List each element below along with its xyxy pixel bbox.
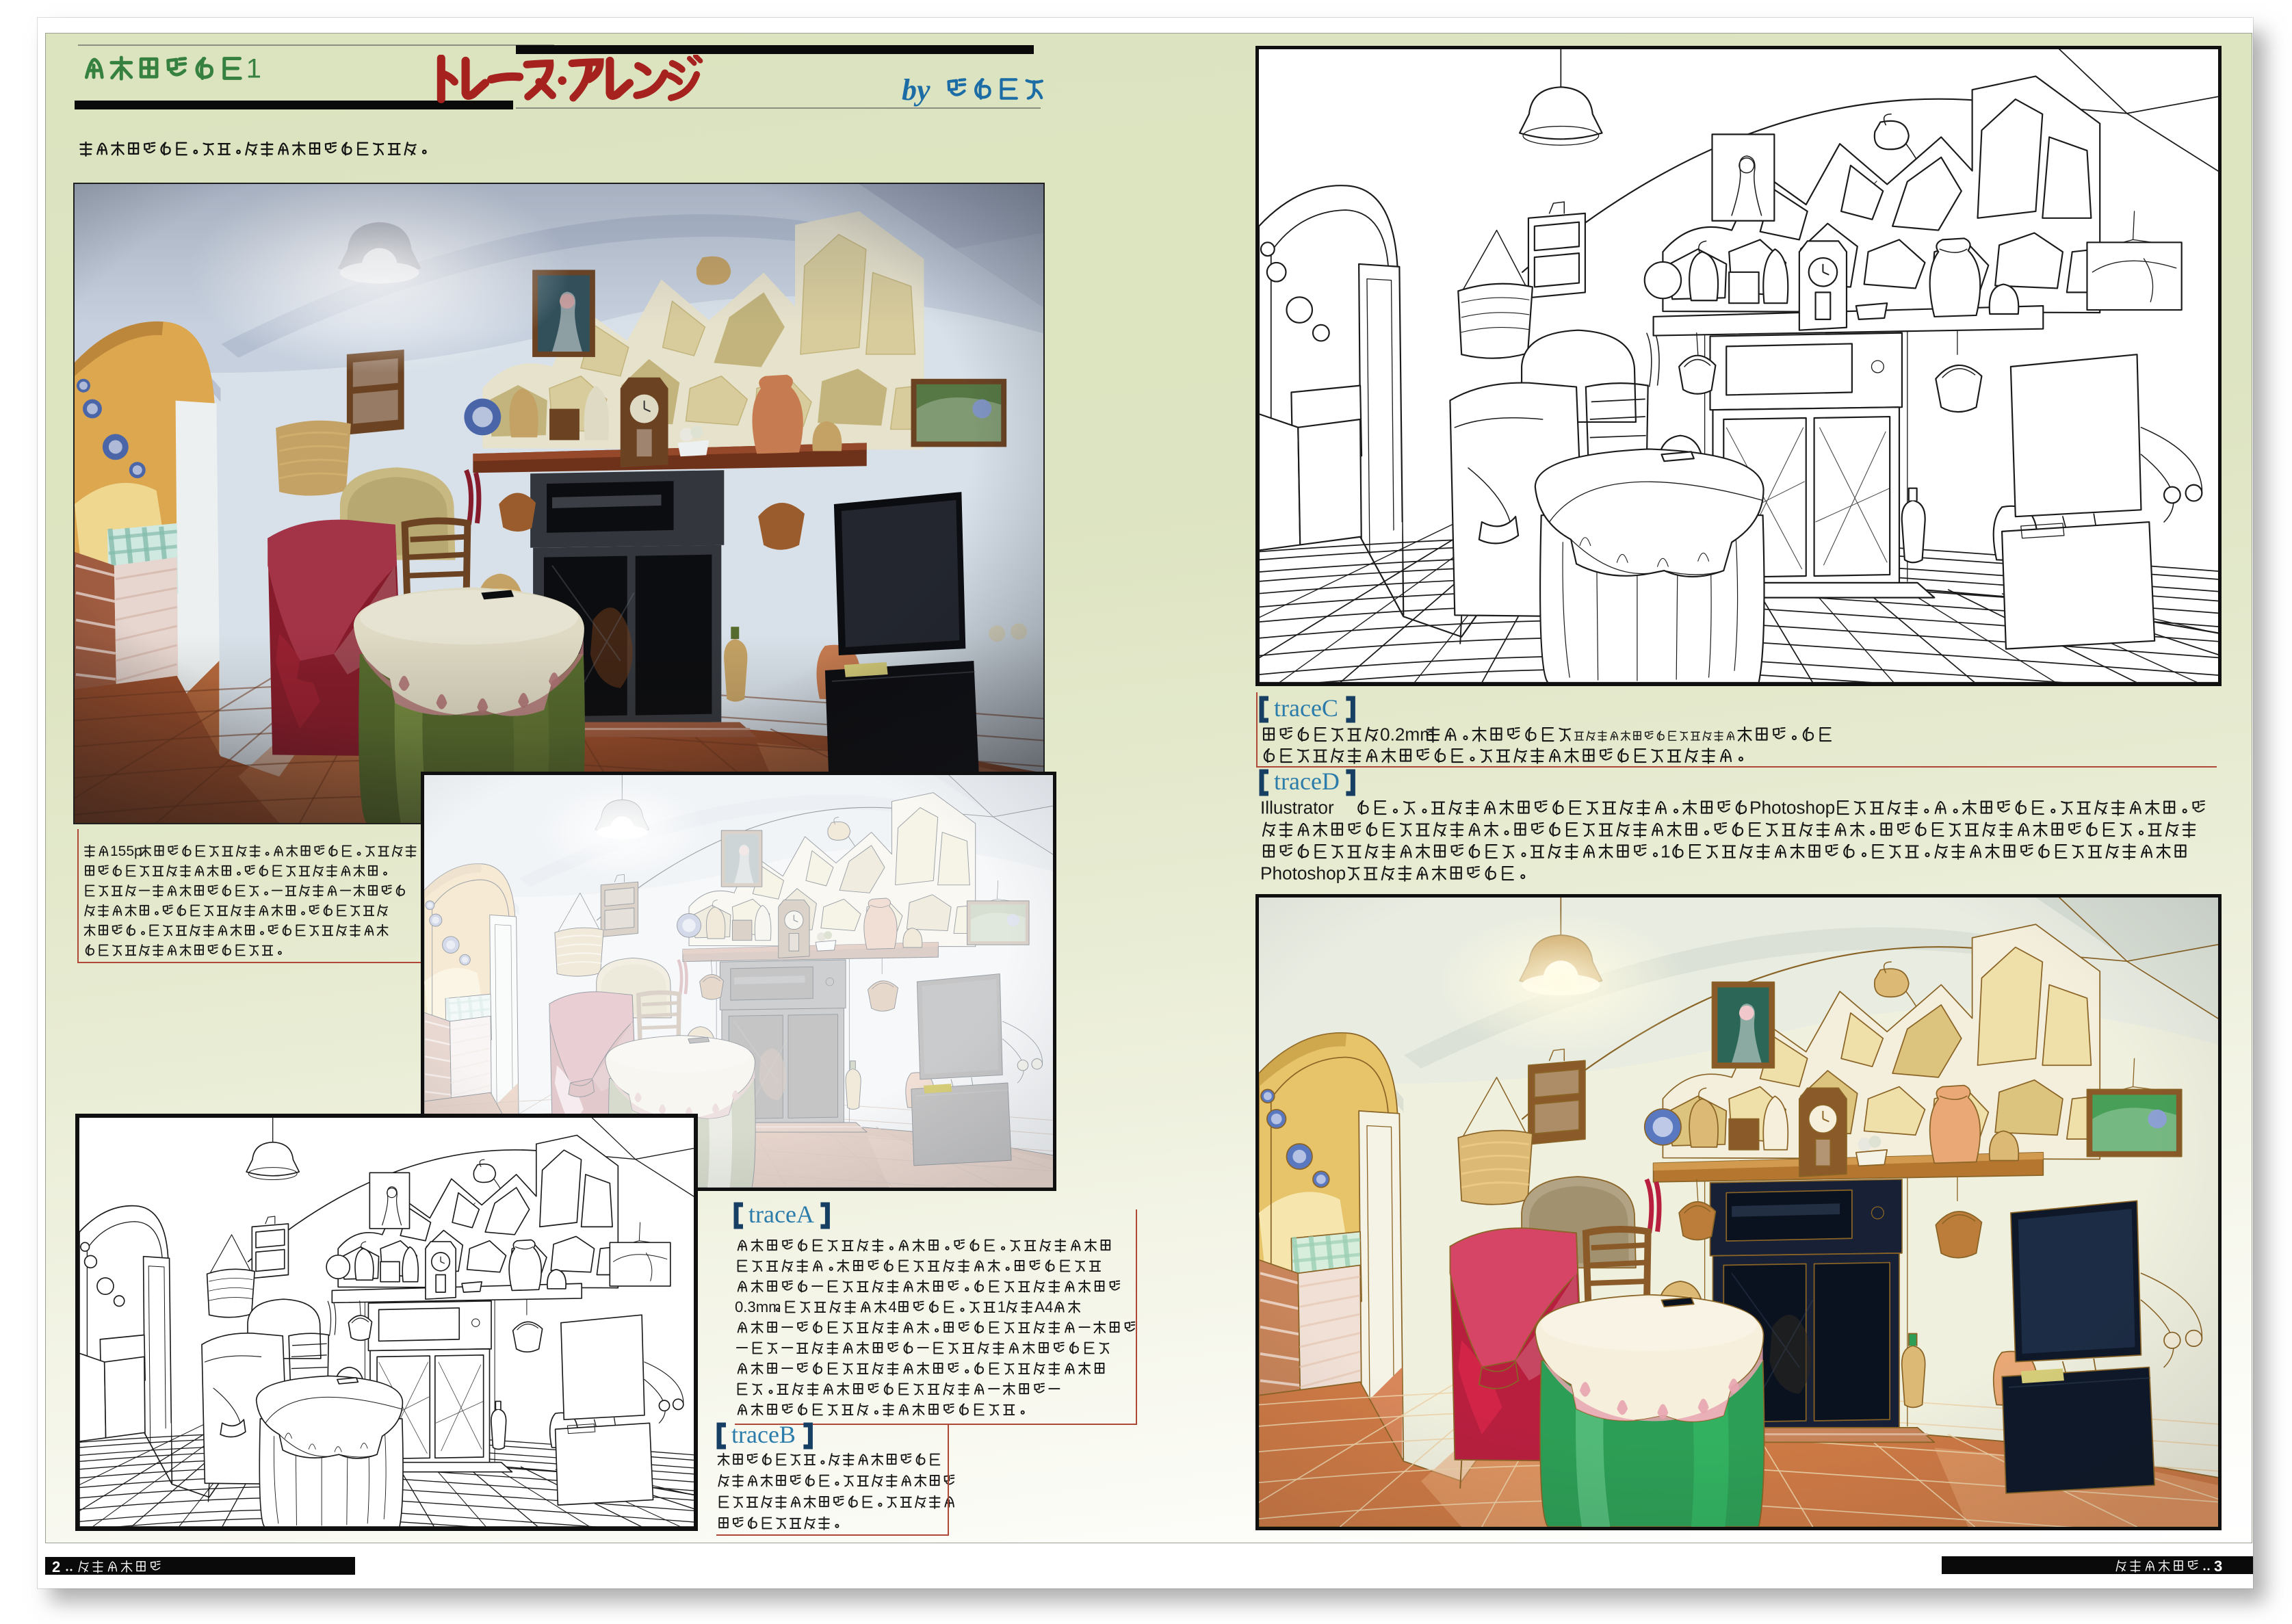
svg-text:traceB: traceB bbox=[731, 1422, 796, 1448]
svg-text:0.3mm: 0.3mm bbox=[735, 1300, 781, 1315]
svg-text:traceD: traceD bbox=[1274, 769, 1340, 795]
svg-text:155p: 155p bbox=[110, 844, 142, 859]
svg-text:A4: A4 bbox=[1034, 1300, 1053, 1315]
svg-text:Photoshop: Photoshop bbox=[1260, 865, 1346, 884]
svg-text:2: 2 bbox=[52, 1559, 60, 1575]
svg-text:3: 3 bbox=[2214, 1558, 2222, 1575]
svg-text:traceC: traceC bbox=[1274, 696, 1338, 722]
svg-text:Illustrator: Illustrator bbox=[1260, 799, 1334, 818]
svg-text:Photoshop: Photoshop bbox=[1749, 799, 1835, 818]
svg-text:1: 1 bbox=[1661, 843, 1671, 862]
svg-text:4: 4 bbox=[888, 1300, 896, 1315]
svg-text:1: 1 bbox=[246, 55, 261, 84]
svg-text:by: by bbox=[902, 77, 930, 107]
svg-text:traceA: traceA bbox=[748, 1202, 814, 1228]
svg-text:1: 1 bbox=[998, 1300, 1006, 1315]
